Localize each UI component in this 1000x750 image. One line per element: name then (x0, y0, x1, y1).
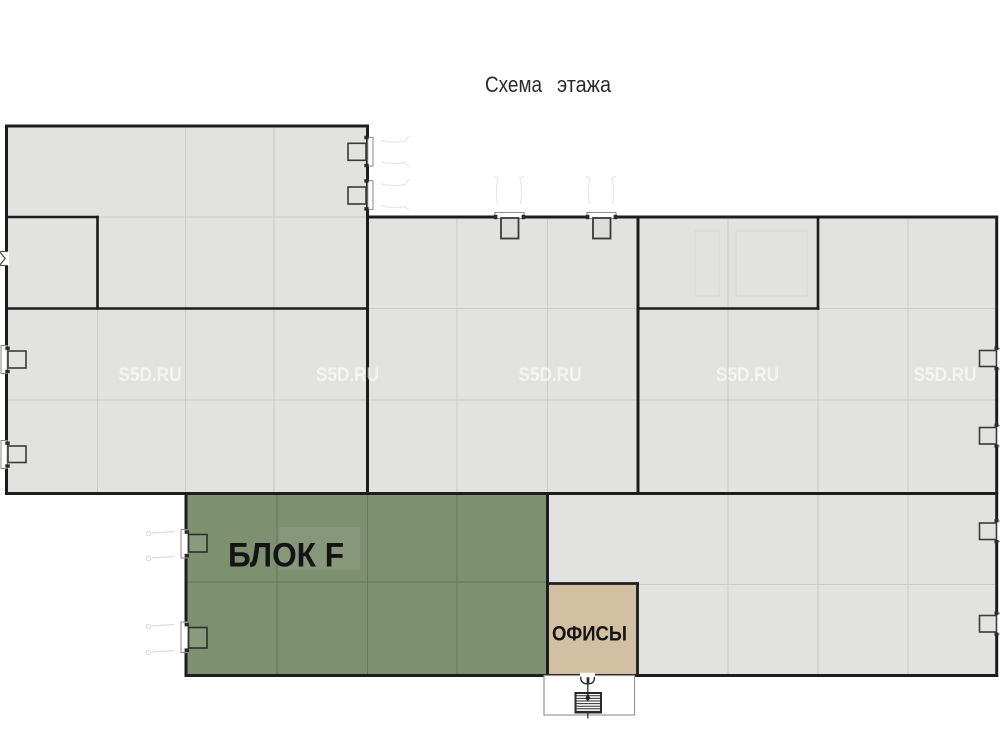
svg-text:ОФИСЫ: ОФИСЫ (552, 623, 627, 646)
svg-text:Схема: Схема (485, 72, 543, 97)
svg-text:S5D.RU: S5D.RU (316, 365, 379, 386)
svg-text:S5D.RU: S5D.RU (519, 365, 582, 386)
svg-text:S5D.RU: S5D.RU (119, 365, 182, 386)
svg-text:S5D.RU: S5D.RU (716, 365, 779, 386)
svg-text:этажа: этажа (557, 72, 612, 97)
svg-text:БЛОК F: БЛОК F (228, 537, 344, 575)
svg-text:S5D.RU: S5D.RU (914, 365, 977, 386)
